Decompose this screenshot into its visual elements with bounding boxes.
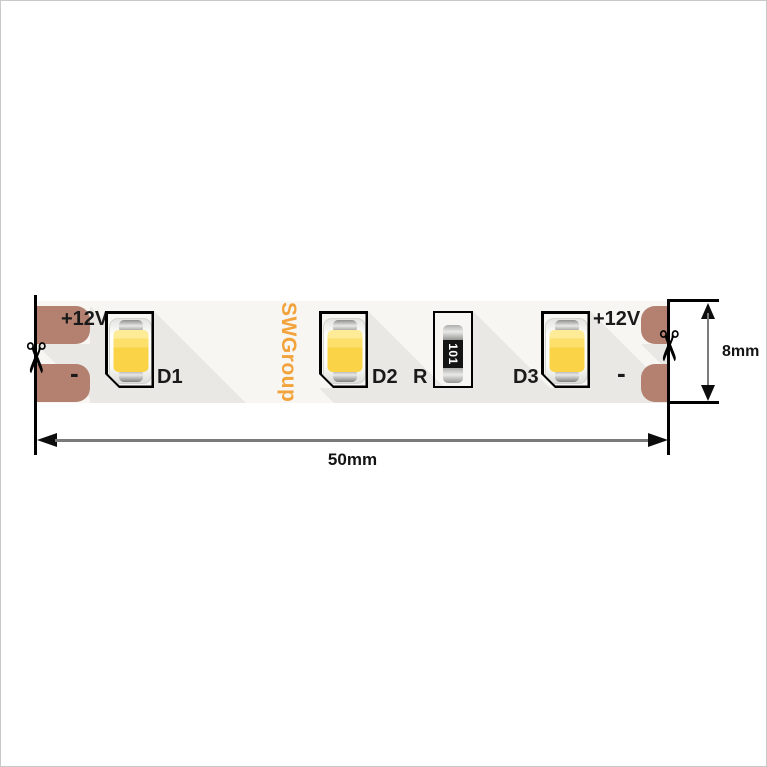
led-phosphor-die <box>327 330 362 372</box>
led-strip: +12V - D1 SWGroup <box>36 301 669 403</box>
resistor-body: 101 <box>443 325 463 383</box>
led-d3-body <box>544 314 588 386</box>
led-phosphor-die <box>113 330 148 372</box>
dim-length-arrowhead-left <box>37 433 57 447</box>
resistor-cap <box>443 325 463 340</box>
terminal-label-positive-left: +12V <box>61 308 108 331</box>
resistor-code: 101 <box>446 343 460 365</box>
resistor-label: R <box>413 366 427 389</box>
scissors-icon: ✂ <box>11 334 59 382</box>
led-d1-label: D1 <box>157 366 183 389</box>
dim-height-label: 8mm <box>722 343 759 361</box>
led-d3 <box>541 311 590 388</box>
led-d2 <box>319 311 368 388</box>
led-d2-body <box>322 314 366 386</box>
dim-height-line <box>707 313 709 391</box>
dim-length-line <box>55 439 649 442</box>
terminal-label-positive-right: +12V <box>593 308 640 331</box>
dim-length-arrowhead-right <box>648 433 668 447</box>
terminal-label-negative-left: - <box>70 363 79 383</box>
resistor-outline: 101 <box>433 311 473 388</box>
brand-logo-text: SWGroup <box>275 302 301 402</box>
scissors-icon: ✂ <box>644 322 692 370</box>
led-d3-label: D3 <box>513 366 539 389</box>
led-package <box>323 318 366 384</box>
led-phosphor-die <box>549 330 584 372</box>
led-d2-label: D2 <box>372 366 398 389</box>
led-d1 <box>105 311 154 388</box>
dim-height-tick-top <box>667 299 719 302</box>
led-d1-body <box>108 314 152 386</box>
dim-length-label: 50mm <box>36 450 669 470</box>
resistor-code-area: 101 <box>443 340 463 368</box>
dim-height-tick-bottom <box>667 401 719 404</box>
terminal-label-negative-right: - <box>617 363 626 383</box>
dim-height-arrowhead-down <box>701 385 715 401</box>
led-package <box>109 318 152 384</box>
led-strip-dimension-diagram: +12V - D1 SWGroup <box>0 0 767 767</box>
led-package <box>545 318 588 384</box>
resistor-cap <box>443 368 463 383</box>
